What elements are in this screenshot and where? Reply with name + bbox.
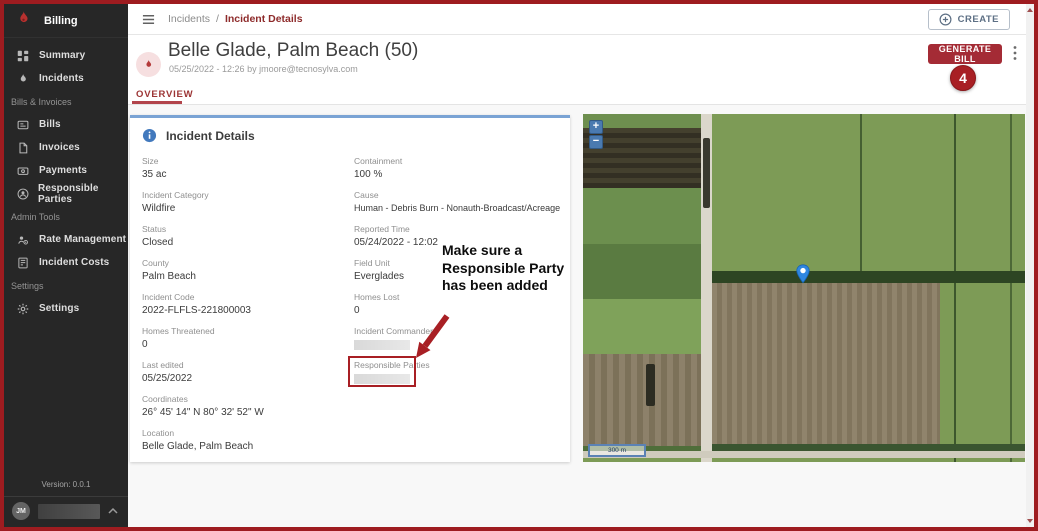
plus-circle-icon bbox=[939, 13, 952, 26]
kebab-menu-icon[interactable] bbox=[1008, 39, 1022, 67]
page-title: Belle Glade, Palm Beach (50) bbox=[168, 40, 418, 62]
user-menu[interactable]: JM bbox=[4, 496, 128, 527]
user-name-redacted bbox=[38, 504, 100, 519]
info-icon bbox=[142, 128, 157, 143]
map-field-line bbox=[954, 114, 956, 462]
field-containment: Containment 100 % bbox=[354, 156, 566, 190]
sidebar-item-label: Settings bbox=[39, 303, 79, 314]
sidebar-section-admin-tools: Admin Tools bbox=[4, 205, 128, 228]
sidebar-item-bills[interactable]: Bills bbox=[4, 113, 128, 136]
field-value: 05/25/2022 bbox=[142, 373, 342, 384]
field-value: 0 bbox=[354, 305, 566, 316]
sidebar-nav: Summary Incidents Bills & Invoices Bills… bbox=[4, 38, 128, 320]
field-location: Location Belle Glade, Palm Beach bbox=[142, 428, 342, 462]
vertical-scrollbar[interactable] bbox=[1026, 4, 1034, 527]
app-version: Version: 0.0.1 bbox=[4, 480, 128, 489]
rate-management-icon bbox=[17, 233, 30, 246]
field-incident-code: Incident Code 2022-FLFLS-221800003 bbox=[142, 292, 342, 326]
map-marker-pin[interactable] bbox=[795, 264, 811, 289]
map-zoom-in-button[interactable]: + bbox=[589, 120, 603, 134]
create-button-label: CREATE bbox=[958, 14, 999, 25]
field-value: Palm Beach bbox=[142, 271, 342, 282]
map-road-label bbox=[646, 364, 655, 406]
field-value: 35 ac bbox=[142, 169, 342, 180]
topbar: Incidents / Incident Details CREATE bbox=[128, 4, 1026, 35]
map-terrain-patch bbox=[712, 283, 940, 451]
chevron-up-icon[interactable] bbox=[108, 507, 118, 515]
app-brand: Billing bbox=[4, 4, 128, 38]
scroll-up-arrow-icon[interactable] bbox=[1027, 8, 1033, 12]
sidebar-item-label: Payments bbox=[39, 165, 87, 176]
sidebar-item-summary[interactable]: Summary bbox=[4, 44, 128, 67]
page-subtitle: 05/25/2022 - 12:26 by jmoore@tecnosylva.… bbox=[169, 64, 358, 74]
gear-icon bbox=[17, 302, 30, 315]
annotation-highlight-rect bbox=[348, 356, 416, 387]
person-circle-icon bbox=[17, 187, 29, 200]
sidebar-item-incidents[interactable]: Incidents bbox=[4, 67, 128, 90]
scroll-down-arrow-icon[interactable] bbox=[1027, 519, 1033, 523]
map-terrain-patch bbox=[583, 188, 701, 244]
map-terrain-patch bbox=[583, 299, 701, 354]
sidebar-item-payments[interactable]: Payments bbox=[4, 159, 128, 182]
incident-details-card: Incident Details Size 35 ac Incident Cat… bbox=[130, 115, 570, 462]
breadcrumb-incidents[interactable]: Incidents bbox=[168, 13, 210, 25]
field-label: Status bbox=[142, 224, 342, 234]
field-label: Location bbox=[142, 428, 342, 438]
active-tab-underline bbox=[132, 101, 182, 104]
annotation-arrow bbox=[408, 310, 454, 364]
invoice-icon bbox=[17, 141, 30, 154]
map-terrain-patch bbox=[583, 354, 701, 446]
field-incident-commander: Incident Commander bbox=[354, 326, 566, 360]
sidebar-item-label: Responsible Parties bbox=[38, 183, 128, 205]
field-label: Homes Threatened bbox=[142, 326, 342, 336]
sidebar-item-label: Bills bbox=[39, 119, 61, 130]
field-label: Size bbox=[142, 156, 342, 166]
map-road-horizontal bbox=[583, 451, 1025, 458]
sidebar-item-settings[interactable]: Settings bbox=[4, 297, 128, 320]
redacted-value bbox=[354, 340, 410, 350]
field-cause: Cause Human - Debris Burn - Nonauth-Broa… bbox=[354, 190, 566, 224]
page-header: Belle Glade, Palm Beach (50) 05/25/2022 … bbox=[128, 35, 1026, 88]
sidebar-item-responsible-parties[interactable]: Responsible Parties bbox=[4, 182, 128, 205]
annotation-note: Make sure a Responsible Party has been a… bbox=[442, 242, 584, 295]
field-label: Coordinates bbox=[142, 394, 342, 404]
tab-overview[interactable]: OVERVIEW bbox=[136, 89, 193, 100]
sidebar-item-invoices[interactable]: Invoices bbox=[4, 136, 128, 159]
app-title: Billing bbox=[44, 15, 78, 27]
field-responsible-parties: Responsible Parties bbox=[354, 360, 566, 394]
tab-bar: OVERVIEW bbox=[128, 88, 1026, 105]
sidebar-section-bills-invoices: Bills & Invoices bbox=[4, 90, 128, 113]
map-terrain-patch bbox=[583, 244, 701, 299]
field-value: 0 bbox=[142, 339, 342, 350]
map-zoom-out-button[interactable]: − bbox=[589, 135, 603, 149]
field-homes-threatened: Homes Threatened 0 bbox=[142, 326, 342, 360]
field-label: Last edited bbox=[142, 360, 342, 370]
field-last-edited: Last edited 05/25/2022 bbox=[142, 360, 342, 394]
field-homes-lost: Homes Lost 0 bbox=[354, 292, 566, 326]
field-label: Incident Category bbox=[142, 190, 342, 200]
sidebar-item-rate-management[interactable]: Rate Management bbox=[4, 228, 128, 251]
field-value: 2022-FLFLS-221800003 bbox=[142, 305, 342, 316]
user-avatar: JM bbox=[12, 502, 30, 520]
field-label: Incident Code bbox=[142, 292, 342, 302]
sidebar-item-label: Rate Management bbox=[39, 234, 126, 245]
sidebar-item-label: Incidents bbox=[39, 73, 84, 84]
sidebar-item-label: Incident Costs bbox=[39, 257, 109, 268]
dashboard-icon bbox=[17, 49, 30, 62]
map-treeline bbox=[712, 444, 1025, 451]
field-label: Containment bbox=[354, 156, 566, 166]
field-size: Size 35 ac bbox=[142, 156, 342, 190]
field-status: Status Closed bbox=[142, 224, 342, 258]
map-field-line bbox=[860, 114, 862, 272]
sidebar-item-incident-costs[interactable]: Incident Costs bbox=[4, 251, 128, 274]
sidebar: Billing Summary Incidents Bills & Invoic… bbox=[4, 4, 128, 527]
field-value: Wildfire bbox=[142, 203, 342, 214]
app-window: Billing Summary Incidents Bills & Invoic… bbox=[0, 0, 1038, 531]
annotation-step-badge: 4 bbox=[950, 65, 976, 91]
breadcrumb: Incidents / Incident Details bbox=[168, 13, 303, 25]
field-value: Belle Glade, Palm Beach bbox=[142, 441, 342, 452]
sidebar-section-settings: Settings bbox=[4, 274, 128, 297]
billing-flame-logo-icon bbox=[15, 10, 32, 32]
field-incident-category: Incident Category Wildfire bbox=[142, 190, 342, 224]
field-value: Human - Debris Burn - Nonauth-Broadcast/… bbox=[354, 203, 566, 213]
breadcrumb-current: Incident Details bbox=[225, 13, 303, 25]
create-button[interactable]: CREATE bbox=[928, 9, 1010, 30]
field-label: County bbox=[142, 258, 342, 268]
map-treeline bbox=[712, 271, 1025, 283]
field-county: County Palm Beach bbox=[142, 258, 342, 292]
map-field-line bbox=[1010, 114, 1012, 462]
field-value: 100 % bbox=[354, 169, 566, 180]
hamburger-menu-icon[interactable] bbox=[142, 13, 155, 26]
incident-flame-avatar-icon bbox=[136, 52, 161, 77]
field-label: Cause bbox=[354, 190, 566, 200]
field-value: Closed bbox=[142, 237, 342, 248]
field-label: Reported Time bbox=[354, 224, 566, 234]
sidebar-footer: Version: 0.0.1 JM bbox=[4, 480, 128, 527]
card-title: Incident Details bbox=[166, 129, 255, 143]
generate-bill-button[interactable]: GENERATE BILL bbox=[928, 44, 1002, 64]
flame-icon bbox=[17, 72, 30, 85]
bill-icon bbox=[17, 118, 30, 131]
sidebar-item-label: Summary bbox=[39, 50, 85, 61]
main-area: Incidents / Incident Details CREATE Bell… bbox=[128, 4, 1026, 527]
content-area: Incident Details Size 35 ac Incident Cat… bbox=[128, 105, 1026, 526]
sidebar-item-label: Invoices bbox=[39, 142, 80, 153]
map-road-label bbox=[703, 138, 710, 208]
payments-icon bbox=[17, 164, 30, 177]
map-scale-bar: 300 m bbox=[588, 444, 646, 457]
incident-costs-icon bbox=[17, 256, 30, 269]
field-label: Incident Commander bbox=[354, 326, 566, 336]
breadcrumb-separator: / bbox=[216, 13, 219, 25]
details-left-column: Size 35 ac Incident Category Wildfire St… bbox=[142, 156, 342, 462]
field-coordinates: Coordinates 26° 45' 14" N 80° 32' 52" W bbox=[142, 394, 342, 428]
satellite-map[interactable]: + − 300 m bbox=[583, 114, 1025, 462]
field-value: 26° 45' 14" N 80° 32' 52" W bbox=[142, 407, 342, 418]
